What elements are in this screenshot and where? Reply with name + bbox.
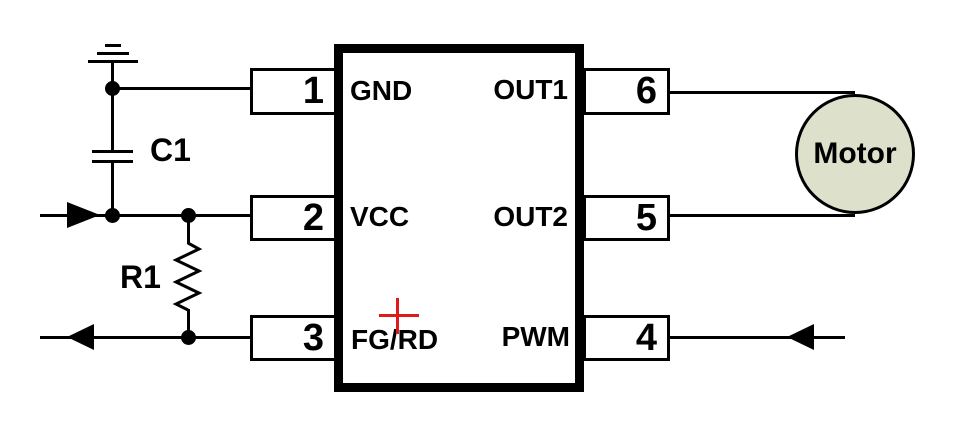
resistor-stem-top [187,215,190,244]
pin-box-5: 5 [583,195,670,241]
circuit-diagram: C1 R1 1 2 3 6 5 4 GND VCC FG/RD OUT1 OUT… [0,0,960,438]
pin-number: 5 [636,197,657,240]
pin-label-pwm: PWM [502,320,570,354]
pin-label-out1: OUT1 [493,73,568,107]
ground-bar-top [105,44,121,47]
arrow-left-icon [67,324,94,350]
pin-box-1: 1 [250,68,337,115]
resistor-zigzag [170,242,206,312]
pin-number: 2 [303,197,324,240]
capacitor-plate-top [92,150,133,153]
pin-box-6: 6 [583,68,670,115]
pin-label-fgrd: FG/RD [351,323,438,357]
arrow-left-icon [787,324,814,350]
cross-vertical [396,298,399,334]
arrow-right-icon [67,202,100,228]
capacitor-label: C1 [150,133,191,167]
wire-pin5-to-motor [670,214,855,217]
wire-pin6-to-motor [670,91,855,94]
pin-number: 6 [636,70,657,113]
pin-label-gnd: GND [350,74,412,108]
motor-label: Motor [813,137,896,171]
pin-number: 3 [303,317,324,360]
wire-gnd-to-pin1 [112,87,250,90]
cross-horizontal [379,314,419,317]
pin-label-vcc: VCC [350,200,409,234]
resistor-label: R1 [120,260,161,294]
pin-number: 4 [636,317,657,360]
junction-dot-fgrd-r1 [181,330,196,345]
capacitor-stem-top [111,88,114,150]
motor: Motor [795,94,915,214]
wire-pin4-input [670,336,845,339]
pin-box-4: 4 [583,315,670,361]
pin-box-2: 2 [250,195,337,241]
pin-label-out2: OUT2 [493,200,568,234]
pin-number: 1 [303,70,324,113]
ground-bar-middle [97,52,129,55]
pin-box-3: 3 [250,315,337,361]
junction-dot-vcc-cap [105,208,120,223]
